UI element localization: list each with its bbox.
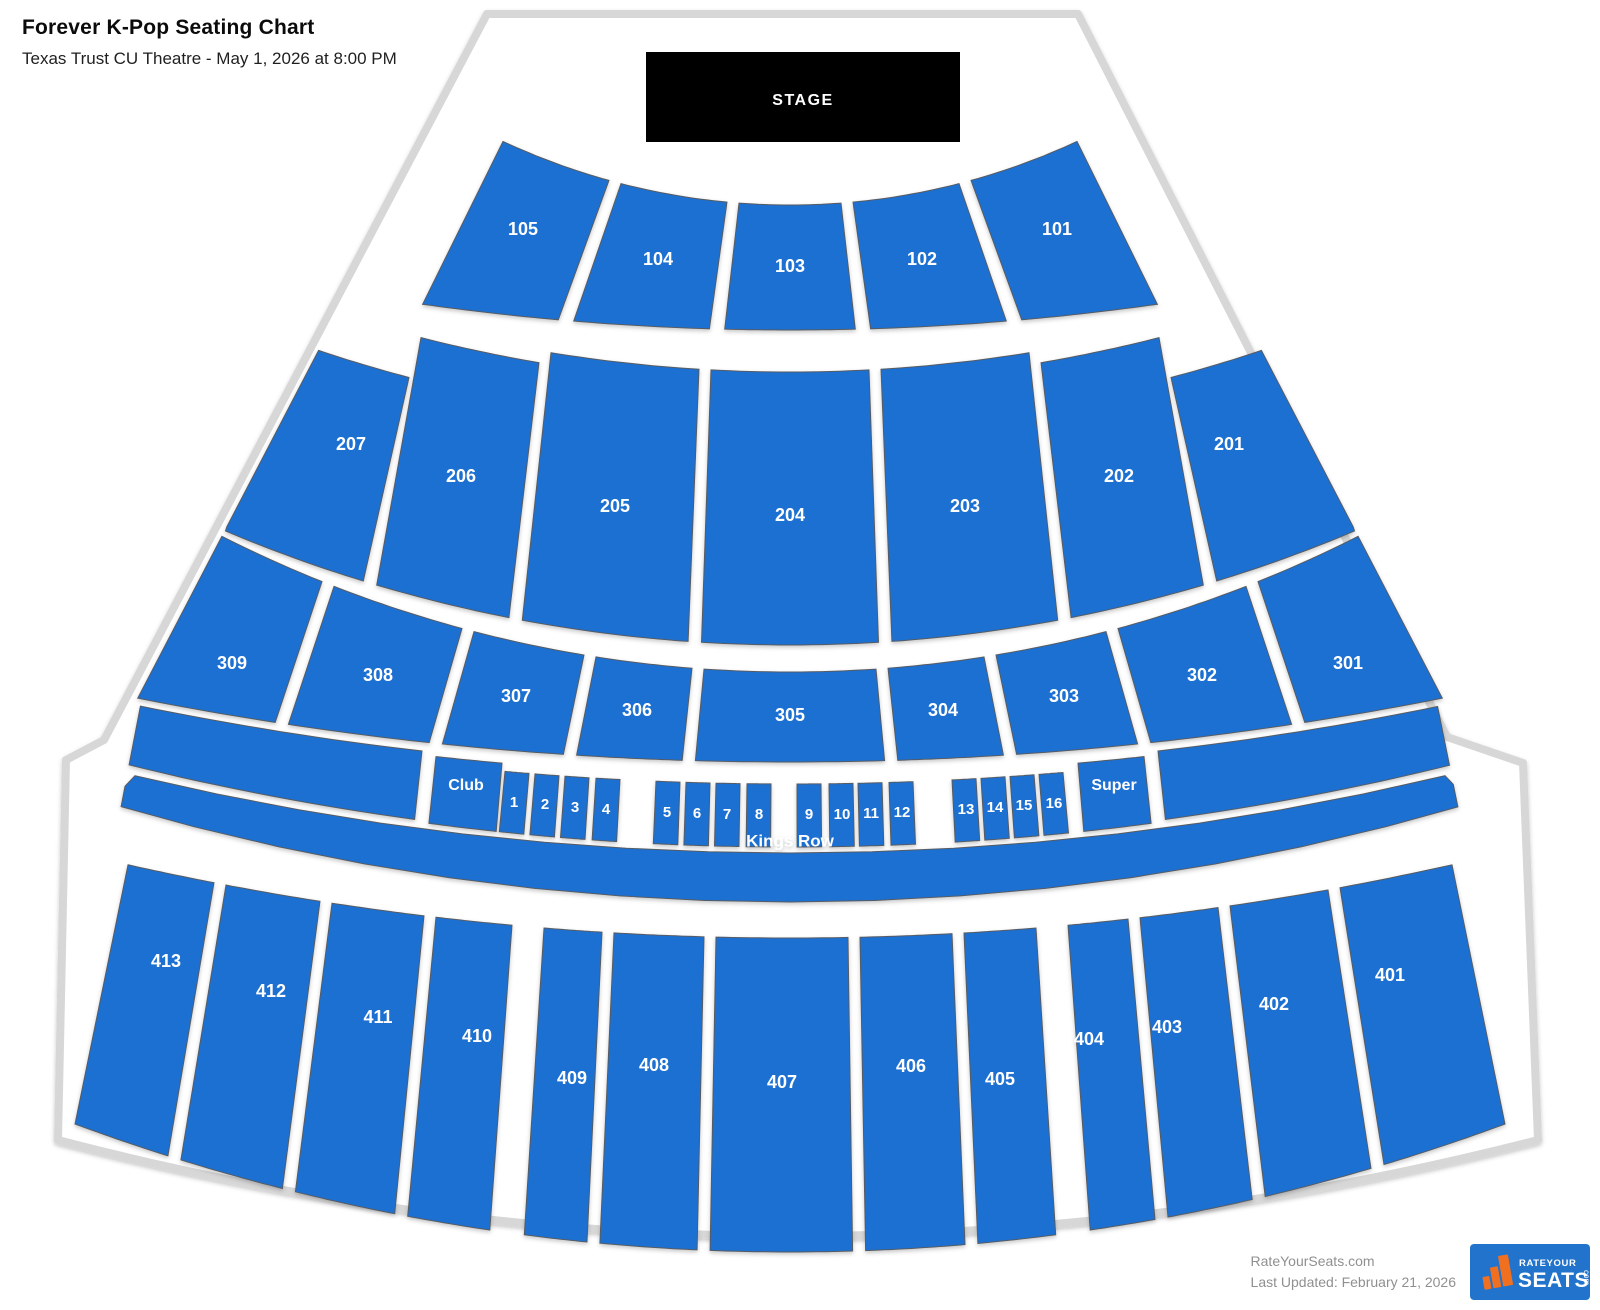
footer-site: RateYourSeats.com	[1251, 1251, 1456, 1272]
box-7[interactable]	[715, 783, 741, 846]
footer-last-updated: Last Updated: February 21, 2026	[1251, 1272, 1456, 1293]
box-4[interactable]	[592, 778, 620, 841]
box-12[interactable]	[889, 782, 916, 846]
stage-label: STAGE	[772, 92, 833, 109]
section-club[interactable]	[429, 757, 502, 832]
logo-line1: RATEYOUR	[1519, 1258, 1576, 1269]
chart-header: Forever K-Pop Seating Chart Texas Trust …	[22, 16, 397, 69]
section-407[interactable]	[710, 937, 853, 1252]
section-406[interactable]	[860, 934, 965, 1251]
event-subtitle: Texas Trust CU Theatre - May 1, 2026 at …	[22, 49, 397, 69]
box-10[interactable]	[829, 783, 854, 846]
box-13[interactable]	[952, 779, 980, 843]
section-408[interactable]	[600, 933, 704, 1250]
logo-suffix: com	[1582, 1270, 1590, 1285]
box-6[interactable]	[684, 782, 710, 846]
section-205[interactable]	[522, 353, 699, 642]
footer-credits: RateYourSeats.com Last Updated: February…	[1251, 1251, 1456, 1293]
rateyourseats-logo[interactable]: RATEYOUR SEATS com	[1470, 1244, 1590, 1300]
section-306[interactable]	[577, 657, 692, 760]
box-9[interactable]	[797, 784, 822, 847]
section-305[interactable]	[695, 669, 884, 762]
box-8[interactable]	[746, 784, 771, 847]
box-2[interactable]	[530, 774, 559, 837]
page-title: Forever K-Pop Seating Chart	[22, 16, 397, 40]
section-204[interactable]	[702, 370, 879, 645]
section-super[interactable]	[1078, 757, 1151, 832]
box-3[interactable]	[561, 776, 590, 839]
logo-line2: SEATS	[1518, 1269, 1589, 1292]
section-103[interactable]	[725, 203, 856, 330]
box-16[interactable]	[1039, 773, 1069, 836]
seating-chart: 1051041031021012072062052042032022013093…	[0, 0, 1600, 1310]
section-304[interactable]	[888, 657, 1003, 760]
box-1[interactable]	[499, 771, 529, 834]
chart-footer: RateYourSeats.com Last Updated: February…	[1251, 1244, 1590, 1300]
section-203[interactable]	[881, 353, 1058, 642]
box-11[interactable]	[858, 783, 884, 846]
box-14[interactable]	[981, 777, 1009, 840]
box-5[interactable]	[653, 781, 680, 845]
box-15[interactable]	[1010, 775, 1039, 838]
